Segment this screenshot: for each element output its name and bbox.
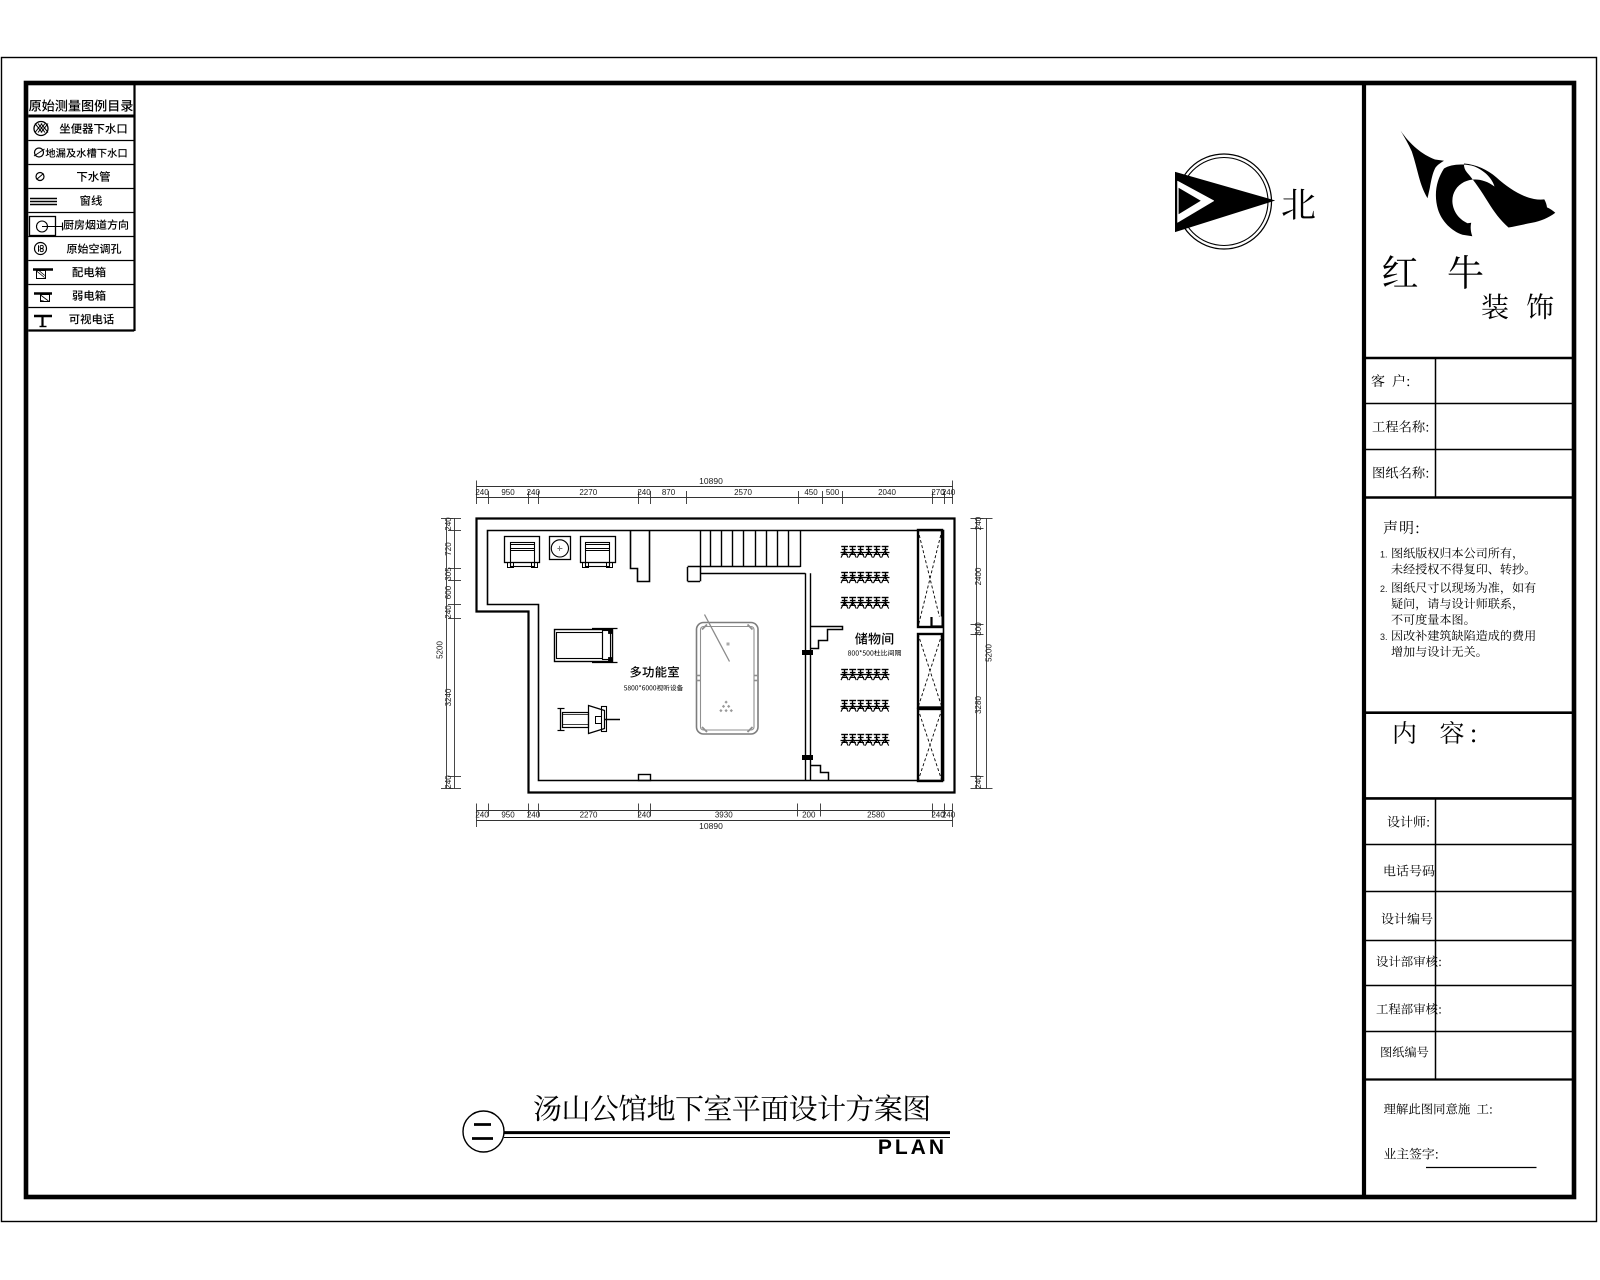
svg-text:720: 720 bbox=[444, 542, 453, 556]
svg-text:5200: 5200 bbox=[436, 641, 445, 659]
svg-text:1.: 1. bbox=[1380, 550, 1388, 560]
svg-text:500: 500 bbox=[826, 488, 840, 497]
svg-text:3280: 3280 bbox=[974, 696, 983, 714]
svg-text:2040: 2040 bbox=[878, 488, 896, 497]
svg-text:450: 450 bbox=[804, 488, 818, 497]
svg-text:2.: 2. bbox=[1380, 584, 1388, 594]
svg-text:240: 240 bbox=[974, 775, 983, 789]
svg-text:2580: 2580 bbox=[867, 811, 885, 820]
svg-text:240: 240 bbox=[444, 605, 453, 619]
svg-text:2270: 2270 bbox=[579, 488, 597, 497]
svg-text:305: 305 bbox=[444, 567, 453, 581]
svg-text:240: 240 bbox=[475, 811, 489, 820]
svg-text:3930: 3930 bbox=[715, 811, 733, 820]
svg-text:240: 240 bbox=[475, 488, 489, 497]
svg-text:240: 240 bbox=[942, 811, 956, 820]
svg-text:240: 240 bbox=[637, 488, 651, 497]
svg-text:5200: 5200 bbox=[985, 644, 994, 662]
svg-text:950: 950 bbox=[501, 488, 515, 497]
svg-text:240: 240 bbox=[527, 811, 541, 820]
svg-text:10890: 10890 bbox=[699, 476, 723, 486]
svg-text:3.: 3. bbox=[1380, 632, 1388, 642]
svg-text:300: 300 bbox=[974, 622, 983, 636]
svg-text:200: 200 bbox=[802, 811, 816, 820]
svg-text:950: 950 bbox=[501, 811, 515, 820]
svg-text:240: 240 bbox=[942, 488, 956, 497]
svg-text:870: 870 bbox=[662, 488, 676, 497]
svg-text:2400: 2400 bbox=[974, 567, 983, 585]
svg-text:2270: 2270 bbox=[580, 811, 598, 820]
svg-text:240: 240 bbox=[444, 775, 453, 789]
svg-text:3240: 3240 bbox=[444, 688, 453, 706]
svg-text:PLAN: PLAN bbox=[878, 1136, 947, 1159]
svg-text:240: 240 bbox=[637, 811, 651, 820]
svg-text:600: 600 bbox=[444, 585, 453, 599]
svg-text:10890: 10890 bbox=[699, 821, 723, 831]
svg-text:240: 240 bbox=[527, 488, 541, 497]
svg-text:2570: 2570 bbox=[734, 488, 752, 497]
